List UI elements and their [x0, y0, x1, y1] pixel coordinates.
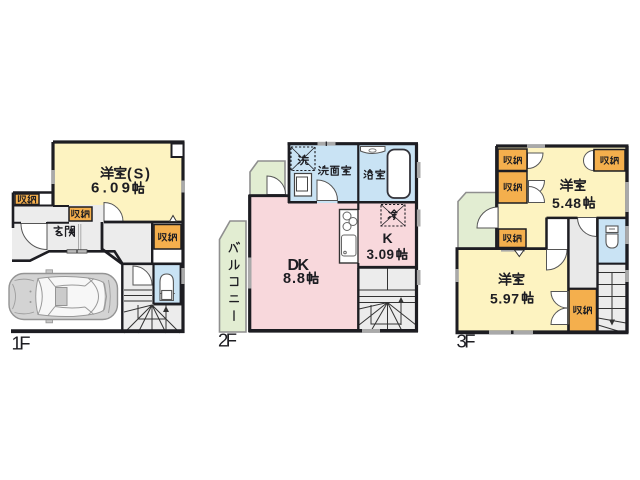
svg-text:3.09: 3.09	[367, 247, 395, 262]
svg-text:(S): (S)	[127, 166, 150, 182]
svg-text:2F: 2F	[218, 330, 237, 351]
svg-text:3F: 3F	[457, 331, 476, 352]
svg-text:8.8: 8.8	[283, 271, 305, 287]
svg-text:K: K	[383, 230, 393, 246]
svg-text:6.09: 6.09	[91, 180, 130, 197]
svg-text:1F: 1F	[12, 333, 31, 354]
svg-text:5.48: 5.48	[552, 195, 581, 211]
svg-text:5.97: 5.97	[490, 290, 519, 306]
